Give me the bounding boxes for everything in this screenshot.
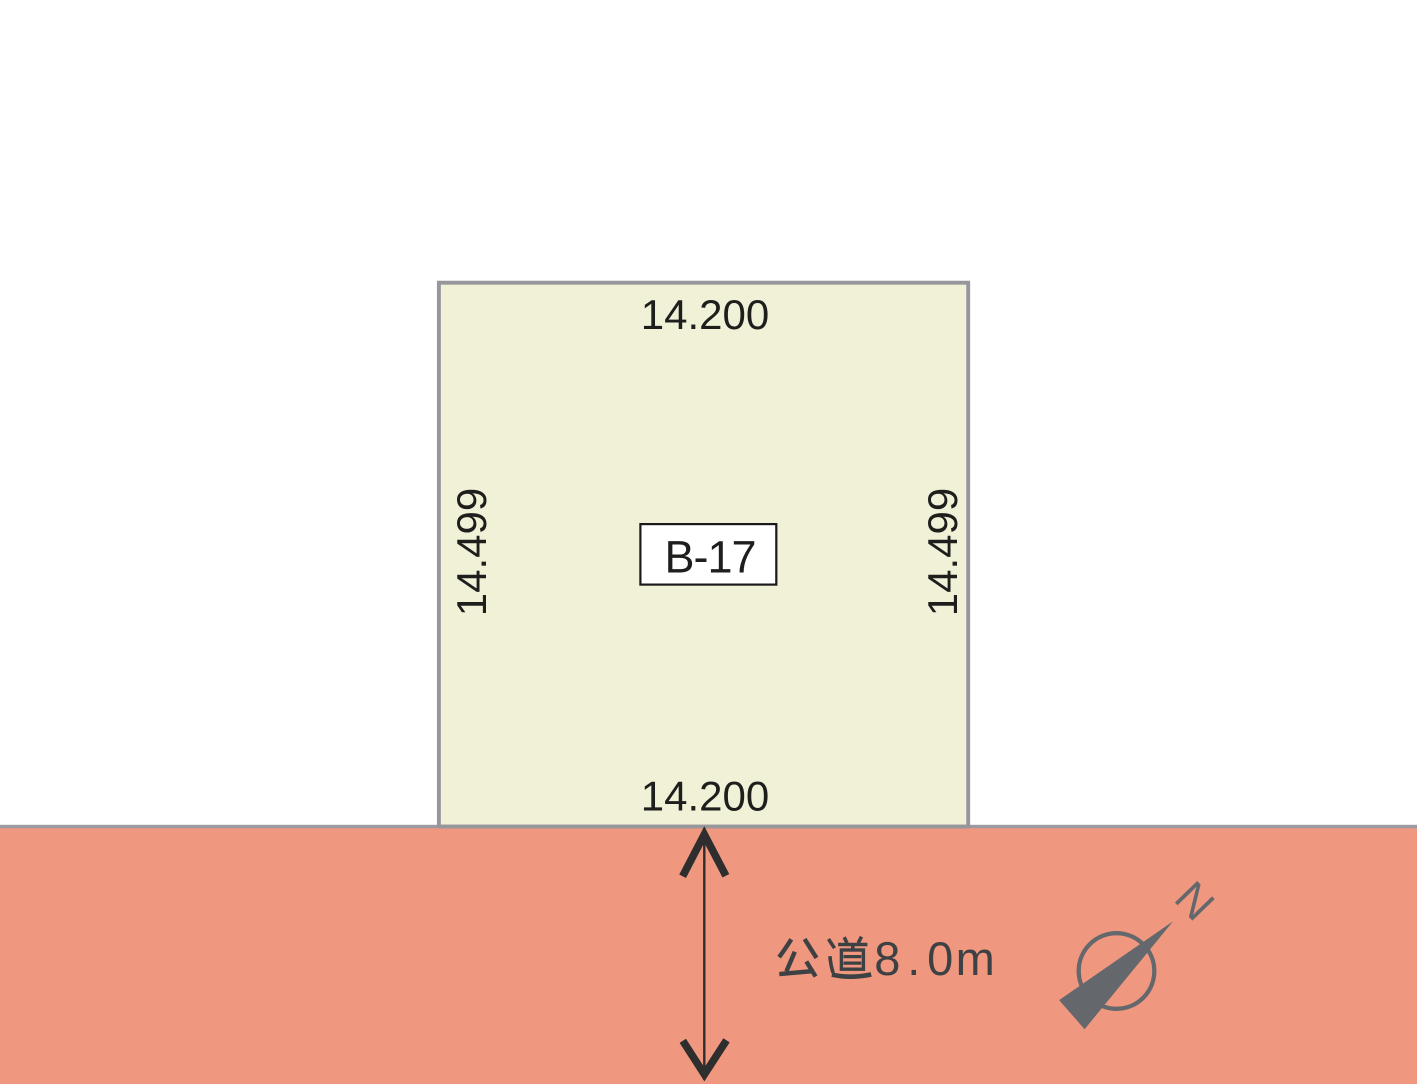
svg-text:14.499: 14.499 — [919, 488, 966, 616]
svg-text:8.0m: 8.0m — [874, 932, 995, 985]
svg-text:B-17: B-17 — [664, 532, 755, 583]
svg-text:14.200: 14.200 — [641, 291, 769, 338]
svg-text:14.499: 14.499 — [448, 488, 495, 616]
svg-text:14.200: 14.200 — [641, 772, 769, 819]
